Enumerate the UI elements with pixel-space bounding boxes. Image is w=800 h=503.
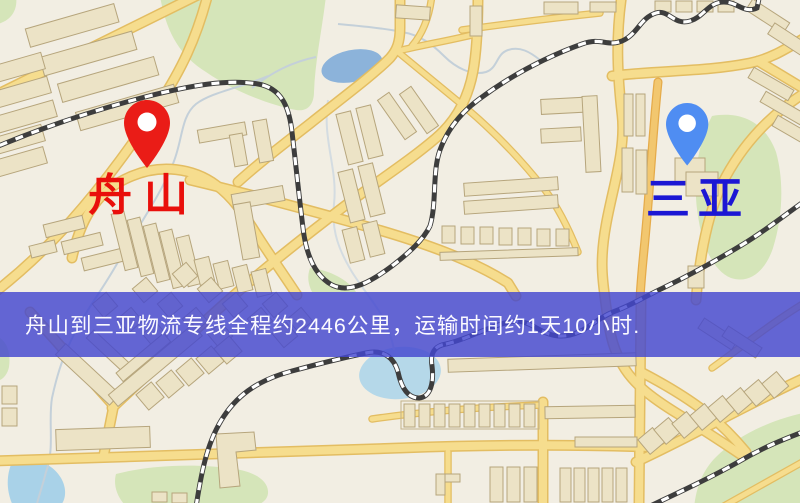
route-info-banner: 舟山到三亚物流专线全程约2446公里，运输时间约1天10小时.	[0, 292, 800, 357]
logistics-route-map: 舟山 三亚 舟山到三亚物流专线全程约2446公里，运输时间约1天10小时.	[0, 0, 800, 503]
destination-label: 三亚	[646, 178, 750, 222]
route-info-text: 舟山到三亚物流专线全程约2446公里，运输时间约1天10小时.	[0, 309, 640, 340]
origin-label: 舟山	[88, 174, 200, 218]
map-canvas	[0, 0, 800, 503]
